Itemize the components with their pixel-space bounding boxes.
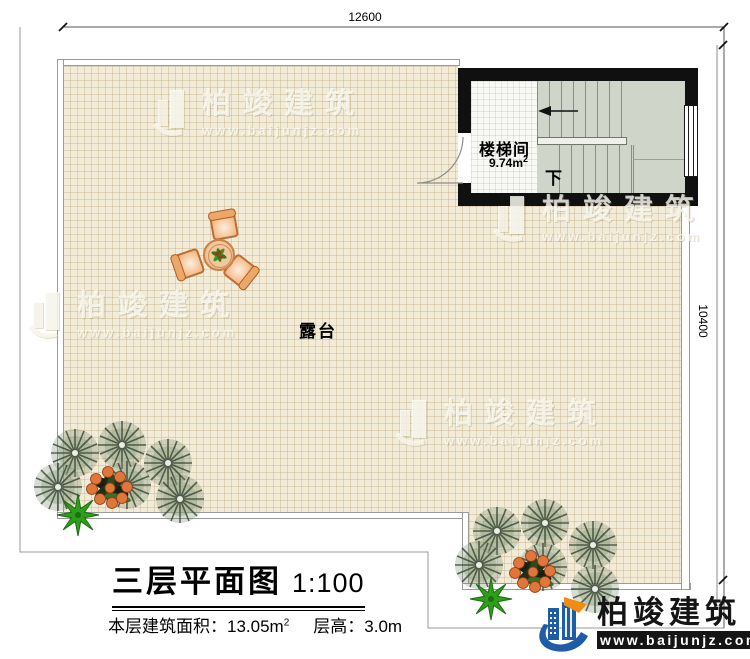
title-block: 三层平面图1:100 (112, 556, 365, 611)
brand-logo: 柏竣建筑 www.baijunjz.com (531, 592, 750, 654)
stair-flight-lower (559, 145, 633, 193)
height-value: 3.0m (364, 617, 402, 636)
stairwell-area-label: 9.74m2 (489, 154, 528, 170)
area-superscript: 2 (284, 617, 290, 628)
area-label: 本层建筑面积： (108, 617, 227, 636)
top-dimension-value: 12600 (338, 10, 392, 24)
parapet-wall-top (57, 59, 460, 66)
plant-cluster-bottom-left (30, 425, 205, 537)
stair-landing-edge-horizontal (633, 159, 685, 160)
brand-url-bar: www.baijunjz.com (597, 631, 750, 649)
chair-top (209, 211, 239, 241)
plan-title: 三层平面图 (112, 564, 282, 599)
parapet-wall-right (681, 200, 690, 590)
title-underline (112, 610, 365, 611)
height-label: 层高： (313, 617, 364, 636)
plan-scale: 1:100 (292, 568, 365, 598)
door-opening (458, 133, 471, 183)
round-table (203, 239, 235, 271)
window-symbol (684, 105, 698, 177)
area-value: 13.05m (227, 617, 284, 636)
terrace-label: 露台 (299, 317, 337, 342)
stair-rail (537, 137, 627, 145)
brand-name: 柏竣建筑 (597, 597, 750, 630)
right-dimension-value: 10400 (696, 294, 710, 348)
stairwell-area-superscript: 2 (523, 154, 528, 164)
floor-stats: 本层建筑面积：13.05m2层高：3.0m (108, 612, 402, 637)
stair-flight-upper (537, 81, 623, 139)
brand-logo-icon (531, 592, 591, 654)
stairwell-area-value: 9.74m (489, 156, 523, 170)
table-centerpiece-plant (210, 246, 228, 264)
stair-landing-edge-vertical (633, 145, 634, 193)
stair-down-label: 下 (545, 164, 562, 189)
floor-plan-canvas: 12600 10400 柏竣建筑 www.baijunjz.com 柏竣建筑 w… (0, 0, 750, 659)
